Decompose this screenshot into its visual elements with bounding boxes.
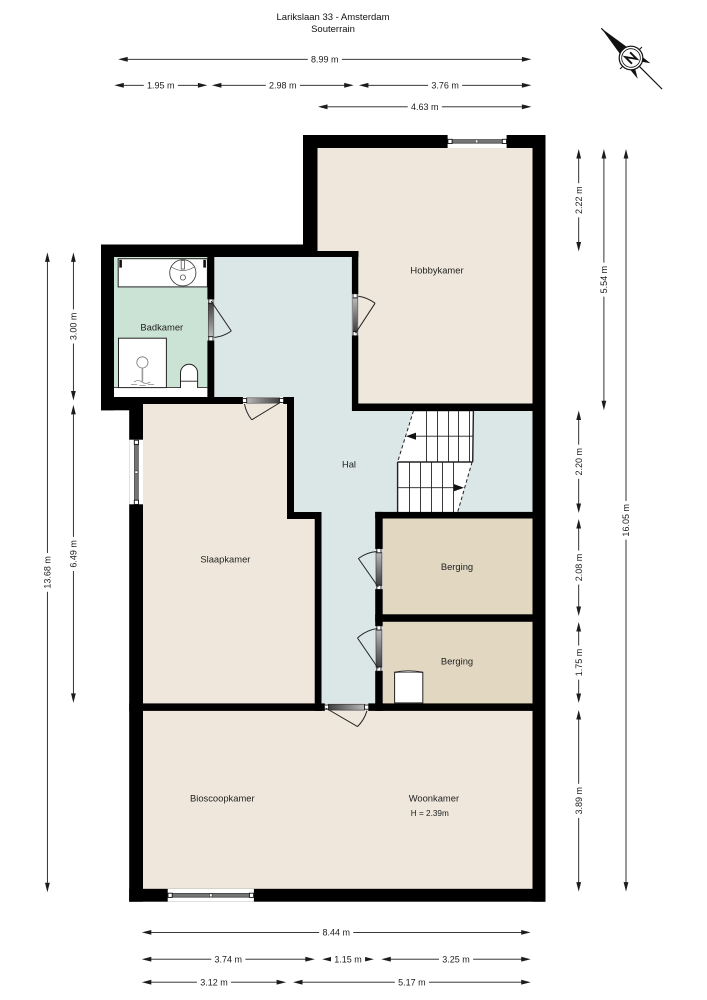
svg-text:Badkamer: Badkamer <box>140 321 183 332</box>
svg-text:1.15 m: 1.15 m <box>334 954 362 964</box>
svg-text:3.89 m: 3.89 m <box>574 787 584 815</box>
svg-text:3.12 m: 3.12 m <box>200 977 228 987</box>
svg-text:Slaapkamer: Slaapkamer <box>200 553 250 564</box>
svg-text:1.95 m: 1.95 m <box>147 80 175 90</box>
svg-text:Berging: Berging <box>441 561 473 572</box>
svg-text:16.05 m: 16.05 m <box>621 504 631 537</box>
svg-text:3.76 m: 3.76 m <box>431 80 459 90</box>
svg-text:Berging: Berging <box>441 656 473 667</box>
svg-text:8.99 m: 8.99 m <box>311 54 339 64</box>
svg-text:8.44 m: 8.44 m <box>322 928 350 938</box>
svg-text:Souterrain: Souterrain <box>311 24 355 35</box>
svg-text:Larikslaan 33 - Amsterdam: Larikslaan 33 - Amsterdam <box>277 12 390 23</box>
svg-text:Hobbykamer: Hobbykamer <box>410 265 463 276</box>
svg-text:Bioscoopkamer: Bioscoopkamer <box>190 793 255 804</box>
svg-text:3.74 m: 3.74 m <box>215 954 243 964</box>
svg-text:2.20 m: 2.20 m <box>574 448 584 476</box>
svg-text:2.98 m: 2.98 m <box>269 80 297 90</box>
svg-text:4.63 m: 4.63 m <box>411 102 439 112</box>
svg-text:5.17 m: 5.17 m <box>398 977 426 987</box>
svg-text:5.54 m: 5.54 m <box>599 266 609 294</box>
svg-text:Hal: Hal <box>342 459 356 470</box>
svg-text:6.49 m: 6.49 m <box>69 540 79 568</box>
svg-text:2.08 m: 2.08 m <box>574 554 584 582</box>
svg-text:13.68 m: 13.68 m <box>43 556 53 589</box>
svg-text:3.00 m: 3.00 m <box>69 313 79 341</box>
svg-text:H = 2.39m: H = 2.39m <box>411 809 449 818</box>
svg-text:2.22 m: 2.22 m <box>574 186 584 214</box>
svg-text:3.25 m: 3.25 m <box>442 954 470 964</box>
svg-text:Woonkamer: Woonkamer <box>409 793 459 804</box>
svg-text:1.75 m: 1.75 m <box>574 649 584 677</box>
